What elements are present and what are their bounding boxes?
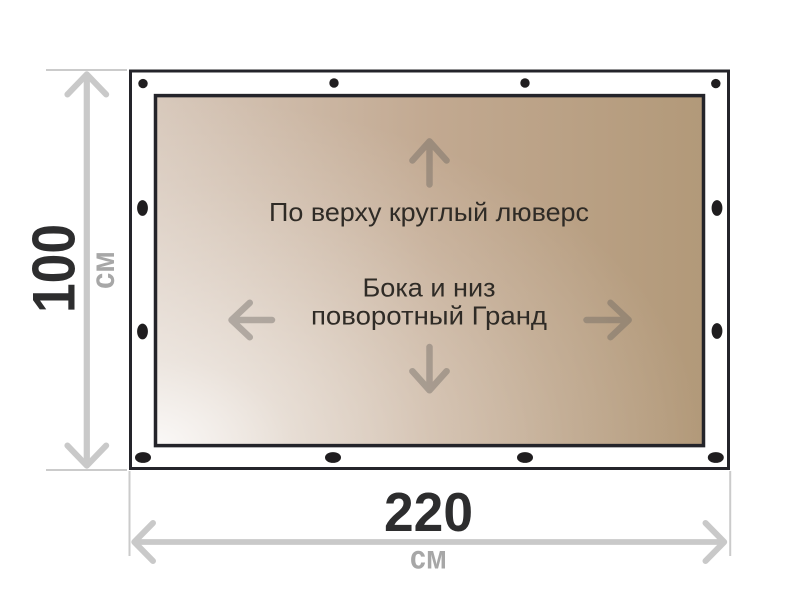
svg-text:см: см xyxy=(84,251,121,289)
svg-text:см: см xyxy=(410,539,447,576)
svg-text:поворотный Гранд: поворотный Гранд xyxy=(311,301,547,331)
svg-text:220: 220 xyxy=(384,481,473,543)
svg-text:100: 100 xyxy=(21,224,88,313)
svg-text:Бока и низ: Бока и низ xyxy=(363,273,496,303)
svg-text:По верху круглый люверс: По верху круглый люверс xyxy=(269,197,589,227)
